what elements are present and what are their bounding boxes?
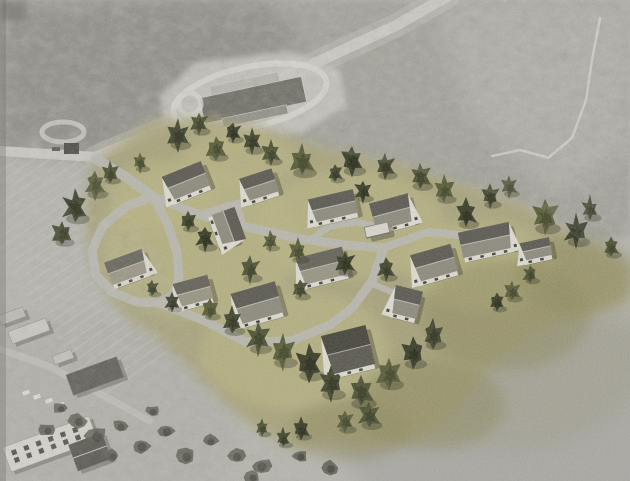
photo-texture (0, 0, 630, 481)
film-grain (0, 0, 630, 481)
corner-shadow (0, 0, 26, 20)
scan-edge (0, 0, 6, 481)
aerial-scene-svg (0, 0, 630, 481)
aerial-photomontage-screenshot (0, 0, 630, 481)
